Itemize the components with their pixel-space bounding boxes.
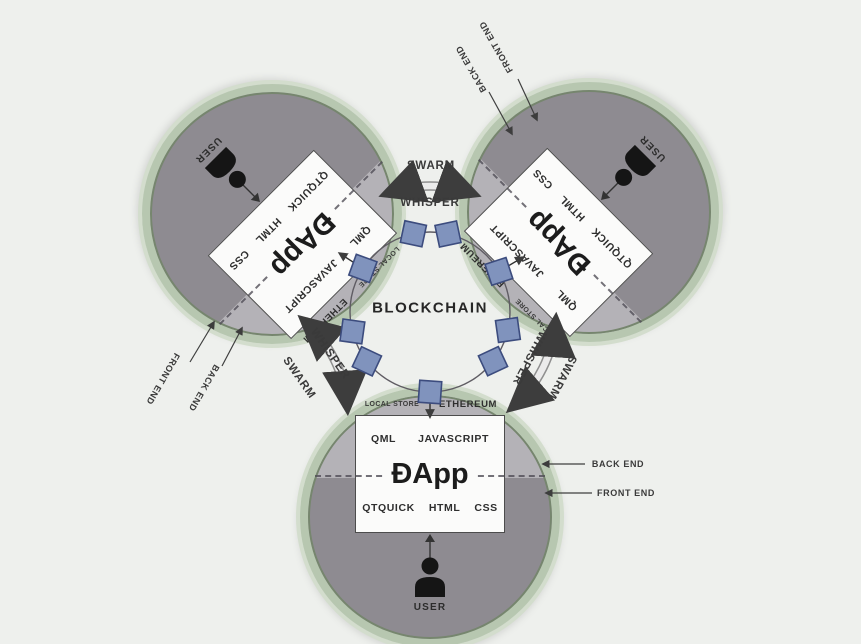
back-end-label-bottom: BACK END — [592, 459, 644, 469]
blockchain-label: BLOCKCHAIN — [372, 300, 488, 317]
stack-row-bottom: QTQUICK HTML CSS — [356, 502, 504, 514]
tech-label: QTQUICK — [362, 502, 415, 514]
tech-label: HTML — [253, 215, 284, 246]
whisper-label-right: WHISPER — [510, 329, 548, 387]
stack-row-top: QML JAVASCRIPT — [356, 433, 504, 445]
tech-label: QML — [371, 433, 396, 445]
blockchain-node — [352, 347, 381, 376]
dapp-title: ĐApp — [356, 458, 504, 491]
tech-label: CSS — [474, 502, 497, 514]
back-end-label-top-right: BACK END — [454, 44, 489, 94]
swarm-label-top: SWARM — [407, 160, 455, 172]
user-label: USER — [300, 602, 560, 613]
user-icon — [412, 557, 448, 597]
dapp-blockchain-diagram: QML JAVASCRIPT ĐApp QTQUICK HTML CSS LOC… — [0, 0, 861, 644]
whisper-label-top: WHISPER — [400, 197, 459, 209]
tech-label: HTML — [429, 502, 461, 514]
tech-label: CSS — [530, 166, 555, 191]
ethereum-label: ETHEREUM — [430, 399, 506, 410]
tech-label: QML — [554, 287, 580, 313]
blockchain-node — [478, 347, 507, 376]
back-end-label-top-left: BACK END — [187, 363, 222, 413]
front-end-label-bottom: FRONT END — [597, 488, 655, 498]
front-end-label-top-right: FRONT END — [477, 19, 515, 74]
dapp-circle-bottom: QML JAVASCRIPT ĐApp QTQUICK HTML CSS LOC… — [300, 387, 560, 644]
tech-label: JAVASCRIPT — [418, 433, 489, 445]
tech-label: HTML — [557, 193, 588, 224]
dapp-circle-top-right: QML JAVASCRIPT ĐApp QTQUICK HTML CSS LOC… — [405, 28, 773, 396]
tech-label: QML — [347, 223, 373, 249]
local-store-label: LOCAL STORE — [352, 401, 432, 408]
dapp-box: QML JAVASCRIPT ĐApp QTQUICK HTML CSS — [355, 415, 505, 533]
front-end-label-top-left: FRONT END — [144, 351, 182, 406]
dapp-circle-top-left: QML JAVASCRIPT ĐApp QTQUICK HTML CSS LOC… — [88, 30, 456, 398]
tech-label: CSS — [226, 248, 251, 273]
